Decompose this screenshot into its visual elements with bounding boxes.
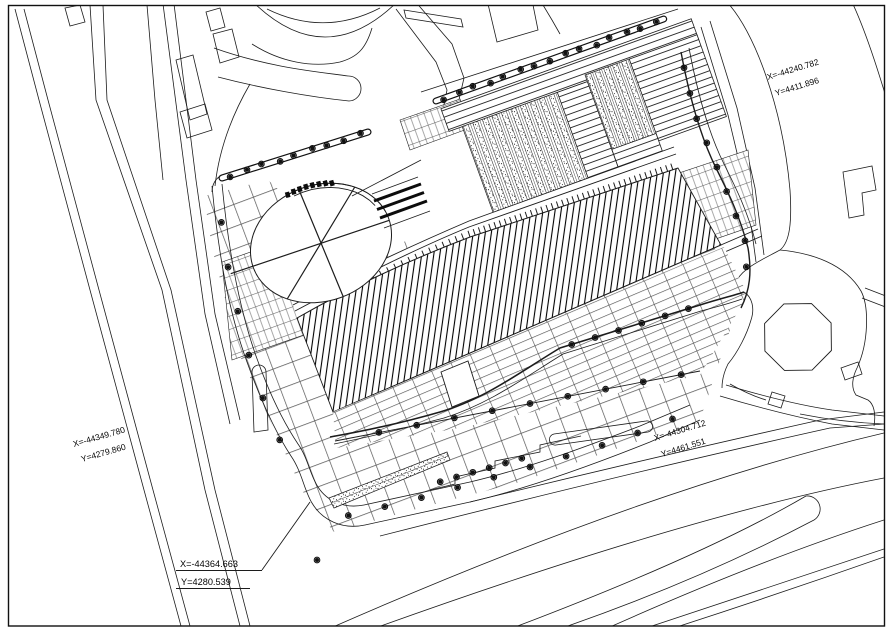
svg-text:X=-44364.663: X=-44364.663 <box>180 559 238 569</box>
svg-text:Y=4280.539: Y=4280.539 <box>181 577 231 587</box>
svg-text:Y=4411.896: Y=4411.896 <box>774 75 821 98</box>
